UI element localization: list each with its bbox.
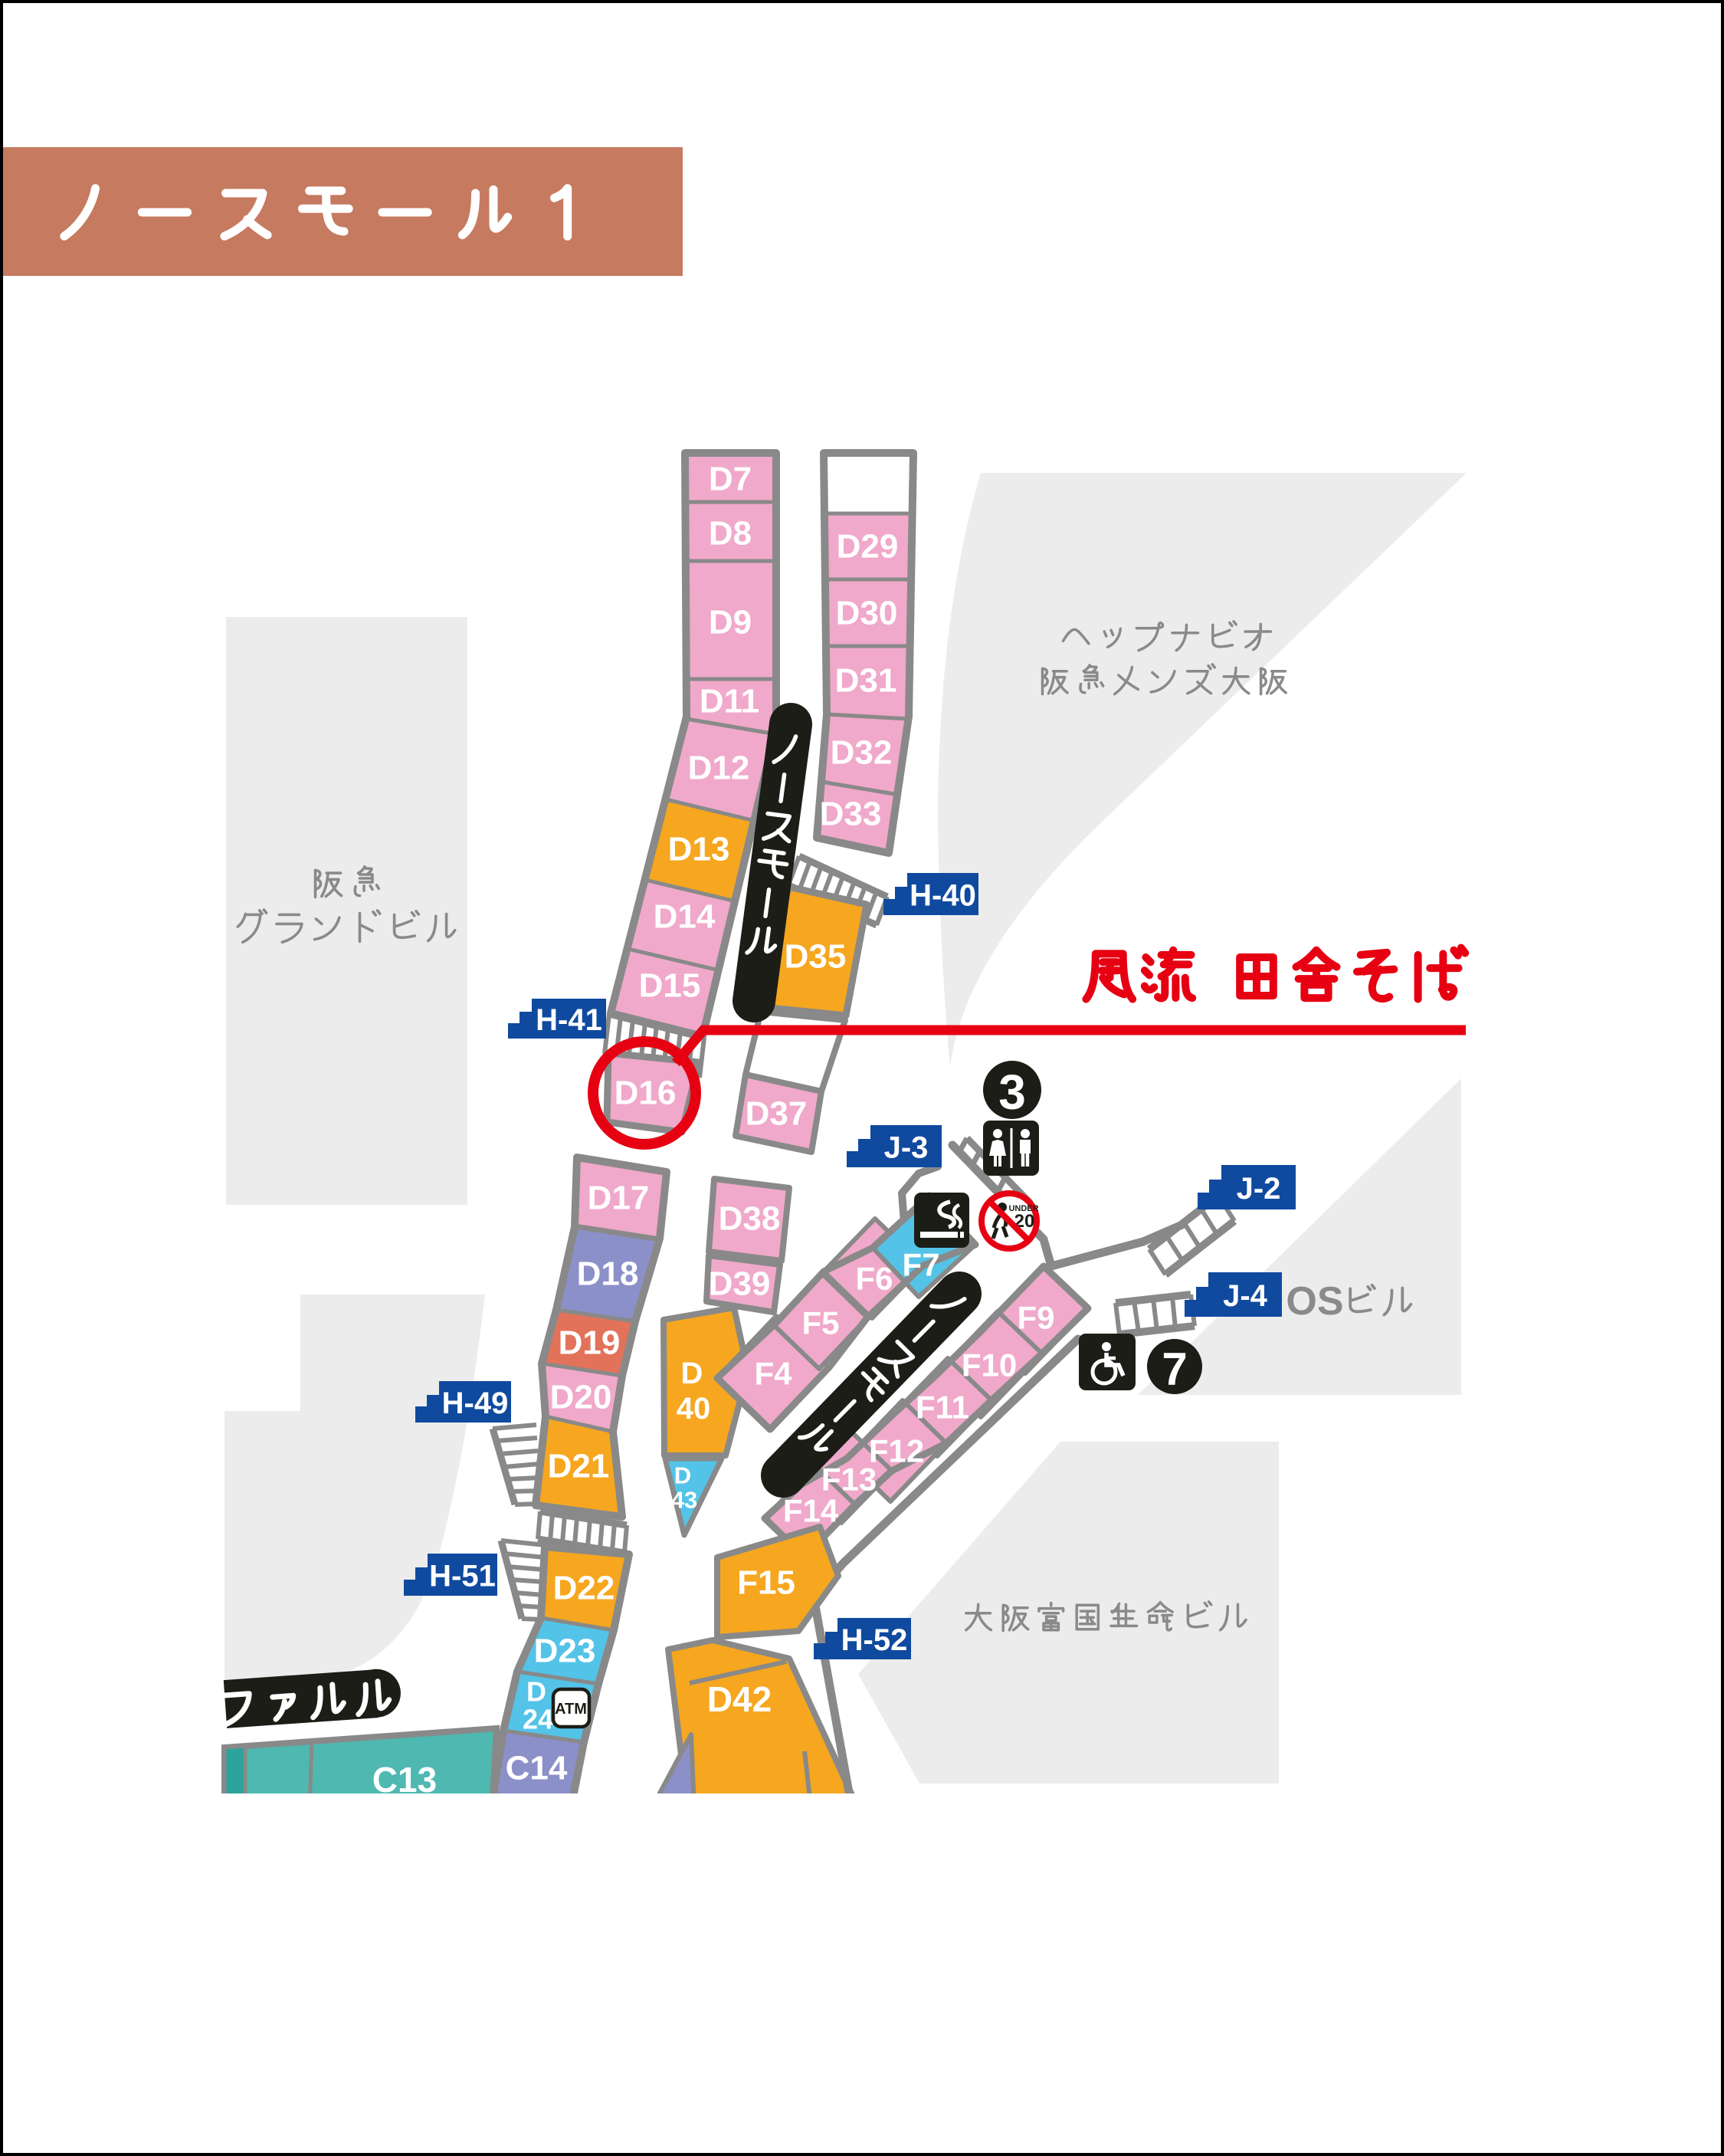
svg-text:D: D (674, 1462, 691, 1489)
svg-text:D: D (526, 1676, 546, 1708)
svg-text:D22: D22 (553, 1570, 615, 1607)
svg-text:F11: F11 (916, 1390, 969, 1426)
svg-text:F14: F14 (783, 1493, 839, 1529)
svg-text:OS: OS (1286, 1279, 1343, 1324)
svg-text:D35: D35 (785, 938, 847, 976)
svg-text:F13: F13 (821, 1462, 877, 1498)
svg-text:D29: D29 (837, 528, 899, 566)
svg-text:ATM: ATM (555, 1701, 587, 1718)
svg-text:F15: F15 (737, 1564, 795, 1602)
svg-text:H-41: H-41 (536, 1003, 602, 1037)
svg-text:D9: D9 (709, 604, 752, 642)
svg-text:D19: D19 (559, 1324, 621, 1362)
svg-text:D14: D14 (654, 898, 716, 936)
svg-text:D23: D23 (534, 1633, 596, 1670)
svg-text:D13: D13 (668, 831, 730, 868)
svg-text:D21: D21 (548, 1448, 610, 1485)
svg-text:D37: D37 (746, 1095, 808, 1133)
svg-text:J-3: J-3 (884, 1131, 929, 1165)
svg-text:F9: F9 (1017, 1300, 1054, 1336)
svg-text:D31: D31 (835, 662, 897, 700)
svg-text:H-49: H-49 (442, 1386, 509, 1420)
svg-text:D: D (681, 1357, 703, 1390)
svg-text:F12: F12 (869, 1433, 924, 1469)
svg-text:F5: F5 (801, 1305, 839, 1341)
svg-text:D42: D42 (707, 1679, 772, 1719)
svg-text:D17: D17 (588, 1180, 650, 1217)
svg-text:D16: D16 (615, 1075, 677, 1112)
svg-text:D12: D12 (688, 750, 750, 787)
svg-text:D7: D7 (709, 461, 752, 498)
svg-text:D38: D38 (719, 1200, 781, 1238)
svg-text:D20: D20 (550, 1379, 612, 1416)
svg-text:3: 3 (998, 1065, 1026, 1120)
svg-text:J-2: J-2 (1237, 1172, 1281, 1206)
svg-text:D33: D33 (820, 796, 882, 833)
svg-text:D30: D30 (836, 595, 898, 632)
svg-text:H-52: H-52 (841, 1623, 908, 1657)
svg-text:24: 24 (523, 1704, 553, 1735)
svg-text:C14: C14 (506, 1750, 568, 1787)
svg-text:F10: F10 (962, 1347, 1017, 1383)
svg-text:F7: F7 (902, 1247, 939, 1283)
svg-text:7: 7 (1162, 1344, 1187, 1395)
svg-text:H-51: H-51 (429, 1560, 496, 1593)
svg-text:H-40: H-40 (910, 879, 976, 913)
svg-text:F6: F6 (855, 1261, 893, 1297)
svg-text:43: 43 (671, 1487, 697, 1514)
svg-text:D8: D8 (709, 515, 752, 553)
svg-text:D18: D18 (577, 1255, 639, 1293)
svg-text:D11: D11 (700, 683, 759, 720)
svg-text:D39: D39 (709, 1265, 771, 1303)
svg-text:F4: F4 (754, 1356, 792, 1392)
svg-text:40: 40 (677, 1392, 711, 1426)
svg-text:D15: D15 (639, 967, 701, 1005)
svg-text:J-4: J-4 (1223, 1279, 1268, 1313)
svg-text:D32: D32 (831, 734, 893, 772)
